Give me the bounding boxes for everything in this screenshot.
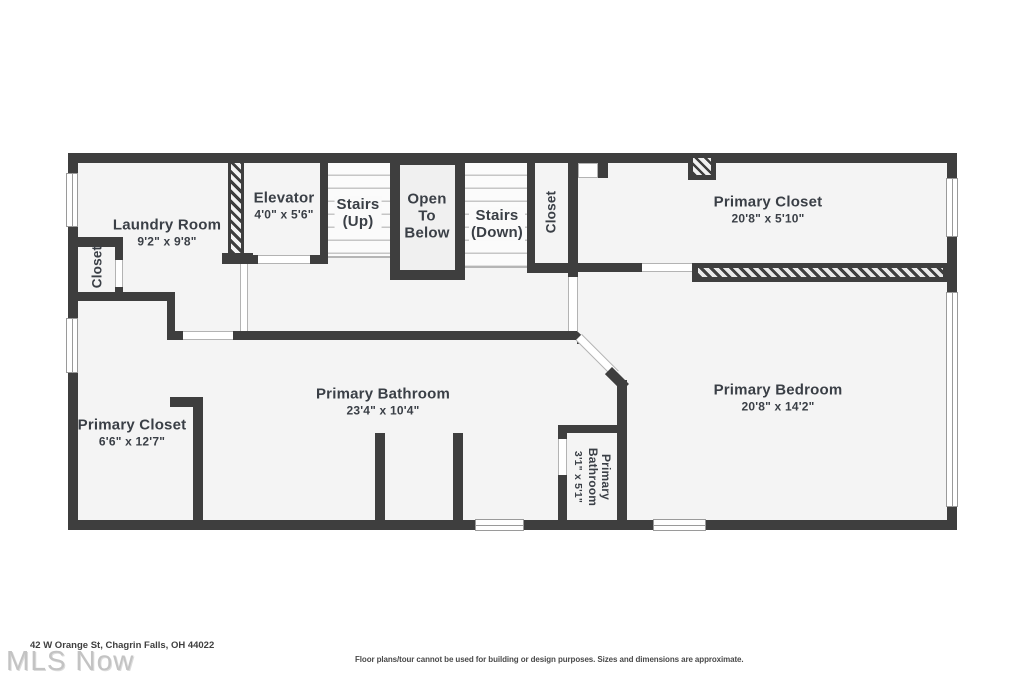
stairs-down-edge: [465, 266, 527, 268]
room-dims: 9'2" x 9'8": [113, 235, 221, 250]
room-name: Laundry Room: [113, 217, 221, 234]
room-name: Stairs (Down): [469, 207, 525, 241]
door-bedroom: [568, 277, 578, 331]
room-label-primary-bedroom: Primary Bedroom 20'8" x 14'2": [714, 382, 843, 415]
room-label-stairs-up: Stairs (Up): [335, 196, 382, 230]
wall-closet-top-left: [527, 155, 535, 273]
room-dims: 23'4" x 10'4": [316, 404, 450, 419]
room-name: Open To Below: [404, 191, 449, 242]
wall-small-bath-top: [558, 425, 627, 433]
window-bottom-right: [653, 519, 706, 531]
door-primary-closet: [642, 263, 692, 272]
door-top-notch: [578, 163, 598, 178]
window-left-upper: [66, 173, 78, 227]
wall-outer-top: [68, 153, 957, 163]
door-laundry-hall: [240, 264, 248, 331]
room-name: Closet: [543, 191, 560, 233]
wall-closet-lower-right: [193, 397, 203, 520]
room-dims: 3'1" x 5'1": [572, 438, 584, 516]
mls-now-watermark: MLS Now: [6, 645, 134, 677]
room-dims: 6'6" x 12'7": [78, 435, 187, 450]
window-right-lower: [946, 292, 958, 507]
room-name: Stairs (Up): [335, 196, 382, 230]
room-name: Closet: [89, 246, 106, 288]
window-right-upper: [946, 178, 958, 237]
room-label-closet-top: Closet: [543, 191, 560, 233]
room-label-primary-bathroom-small: Primary Bathroom 3'1" x 5'1": [572, 438, 612, 516]
wall-elevator-south-a: [244, 255, 258, 264]
wall-hatched-column: [228, 163, 244, 253]
room-name: Primary Bedroom: [714, 382, 843, 399]
door-small-bath: [558, 439, 567, 475]
room-name: Primary Bathroom: [586, 438, 612, 516]
room-name: Primary Closet: [78, 417, 187, 434]
wall-elevator-right: [320, 153, 328, 264]
room-label-primary-closet-upper: Primary Closet 20'8" x 5'10": [714, 194, 823, 227]
wall-bath-partition-2: [453, 433, 463, 520]
room-label-laundry: Laundry Room 9'2" x 9'8": [113, 217, 221, 250]
room-dims: 20'8" x 5'10": [714, 212, 823, 227]
window-bottom-left: [475, 519, 524, 531]
wall-hall-south-b: [233, 331, 577, 340]
door-closet-left: [115, 260, 123, 287]
door-elevator: [258, 255, 310, 264]
wall-laundry-bottom: [68, 292, 175, 301]
floor-plan-page: Laundry Room 9'2" x 9'8" Closet Elevator…: [0, 0, 1024, 683]
wall-hatch-pattern: [698, 268, 943, 277]
door-bathroom-entry: [183, 331, 233, 340]
wall-small-bath-right: [617, 380, 627, 520]
room-name: Elevator: [254, 190, 315, 207]
wall-small-bath-left-b: [558, 475, 567, 520]
wall-primary-closet-south: [577, 263, 642, 272]
stairs-up-edge: [328, 256, 390, 258]
wall-notch-stub: [598, 153, 608, 178]
wall-hatched-long: [692, 263, 947, 282]
room-label-primary-bathroom: Primary Bathroom 23'4" x 10'4": [316, 386, 450, 419]
room-dims: 4'0" x 5'6": [254, 208, 315, 223]
room-label-open-to-below: Open To Below: [404, 191, 449, 242]
room-label-primary-closet-lower: Primary Closet 6'6" x 12'7": [78, 417, 187, 450]
room-label-elevator: Elevator 4'0" x 5'6": [254, 190, 315, 223]
window-left-lower: [66, 318, 78, 373]
room-name: Primary Bathroom: [316, 386, 450, 403]
room-label-stairs-down: Stairs (Down): [469, 207, 525, 241]
room-label-closet-left: Closet: [89, 246, 106, 288]
wall-hall-south-a: [167, 331, 183, 340]
wall-bath-partition-1: [375, 433, 385, 520]
chimney-block: [688, 153, 716, 180]
wall-bedroom-left: [568, 153, 578, 277]
room-dims: 20'8" x 14'2": [714, 400, 843, 415]
room-name: Primary Closet: [714, 194, 823, 211]
disclaimer-text: Floor plans/tour cannot be used for buil…: [355, 655, 744, 664]
